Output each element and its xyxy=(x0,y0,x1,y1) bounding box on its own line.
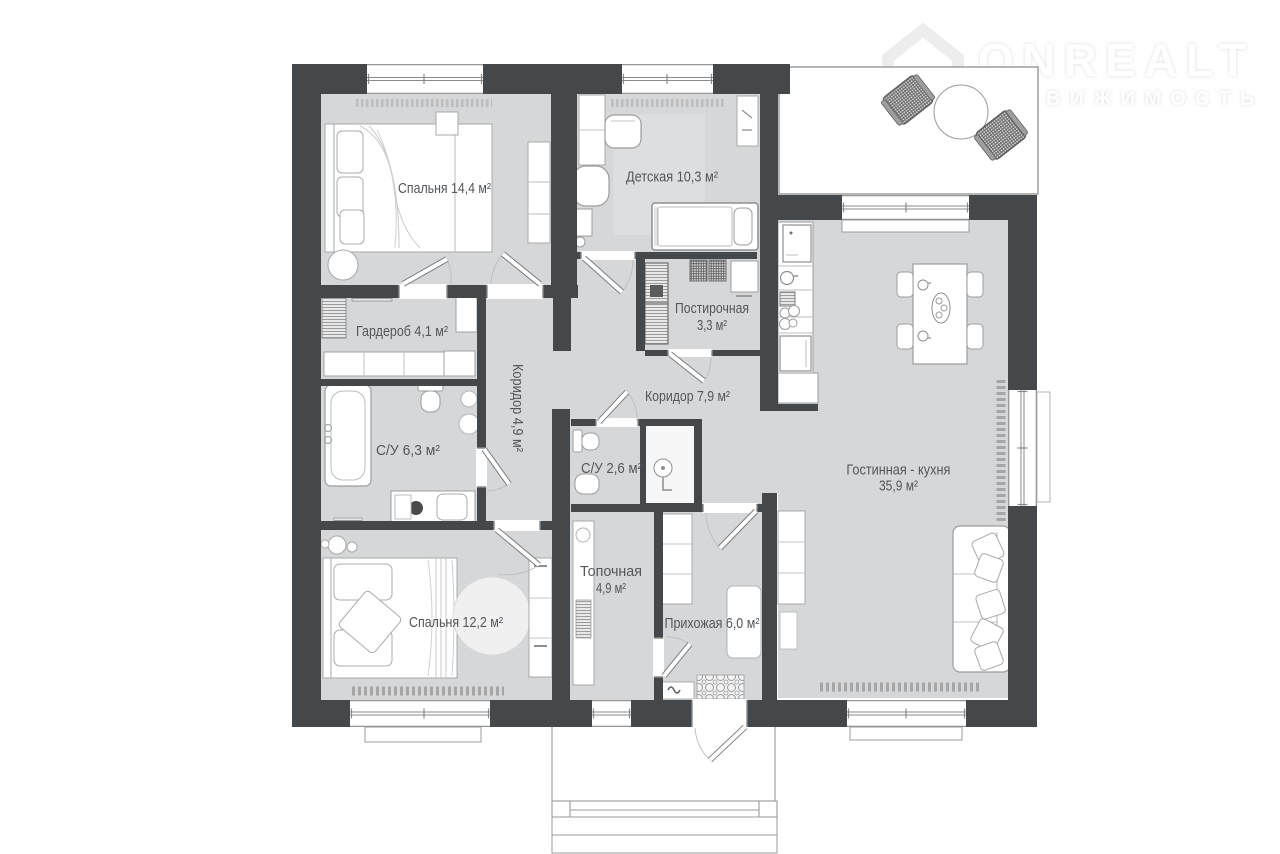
svg-text:Гостинная - кухня: Гостинная - кухня xyxy=(846,463,950,479)
svg-text:Топочная: Топочная xyxy=(580,564,642,580)
svg-text:3,3 м²: 3,3 м² xyxy=(697,318,727,334)
svg-text:Прихожая 6,0 м²: Прихожая 6,0 м² xyxy=(665,616,760,632)
svg-text:С/У 2,6 м²: С/У 2,6 м² xyxy=(581,461,642,477)
svg-text:Спальня 12,2 м²: Спальня 12,2 м² xyxy=(409,615,503,631)
svg-text:Детская 10,3 м²: Детская 10,3 м² xyxy=(626,170,718,186)
svg-text:Постирочная: Постирочная xyxy=(675,301,749,317)
svg-text:Коридор 7,9 м²: Коридор 7,9 м² xyxy=(645,389,730,405)
svg-text:С/У 6,3 м²: С/У 6,3 м² xyxy=(376,443,440,459)
svg-text:Спальня 14,4 м²: Спальня 14,4 м² xyxy=(398,181,491,197)
svg-text:Коридор 4,9 м²: Коридор 4,9 м² xyxy=(509,364,525,452)
svg-text:35,9 м²: 35,9 м² xyxy=(879,479,918,495)
svg-text:Гардероб 4,1 м²: Гардероб 4,1 м² xyxy=(356,324,448,340)
svg-text:4,9 м²: 4,9 м² xyxy=(596,581,626,597)
